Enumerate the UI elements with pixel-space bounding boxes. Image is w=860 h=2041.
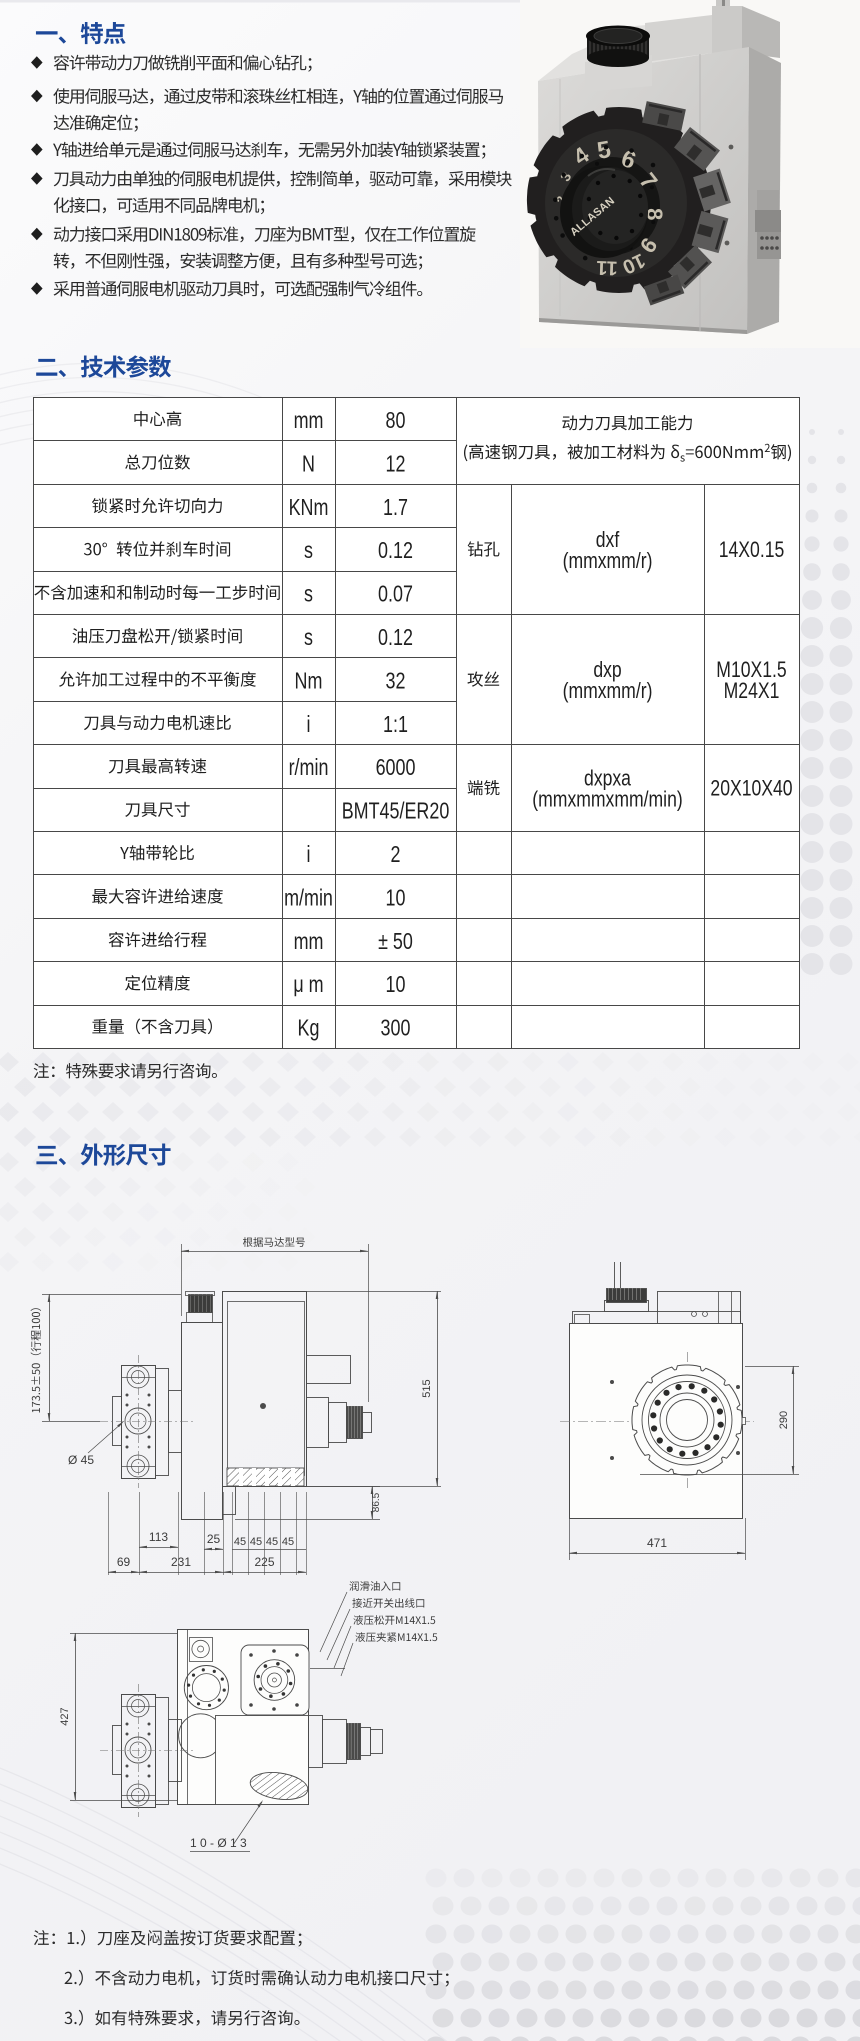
svg-text:Ø 45: Ø 45 [68,1453,94,1467]
svg-text:(mmxmmxmm/min): (mmxmmxmm/min) [532,788,682,812]
svg-text:225: 225 [254,1555,274,1569]
svg-text:45: 45 [282,1536,294,1548]
svg-text:BMT45/ER20: BMT45/ER20 [342,799,450,825]
svg-text:45: 45 [266,1536,278,1548]
svg-text:i: i [307,712,311,738]
svg-text:m/min: m/min [284,885,333,911]
svg-text:290: 290 [778,1411,790,1429]
svg-text:10: 10 [386,972,406,998]
svg-text:mm: mm [294,408,324,434]
svg-text:(mmxmm/r): (mmxmm/r) [563,679,653,703]
svg-text:(mmxmm/r): (mmxmm/r) [563,549,653,573]
svg-text:427: 427 [59,1707,71,1725]
svg-text:86.5: 86.5 [371,1492,382,1512]
svg-text:s: s [304,625,313,651]
svg-text:μ m: μ m [293,972,323,998]
svg-text:s: s [304,538,313,564]
svg-text:Nm: Nm [295,668,323,694]
svg-text:69: 69 [117,1555,131,1569]
svg-text:0.12: 0.12 [378,538,413,564]
svg-text:45: 45 [250,1536,262,1548]
svg-text:M24X1: M24X1 [724,679,780,703]
svg-text:20X10X40: 20X10X40 [710,777,792,801]
svg-text:± 50: ± 50 [378,929,413,955]
svg-text:N: N [302,451,315,477]
svg-text:113: 113 [149,1530,168,1544]
svg-text:45: 45 [234,1536,246,1548]
svg-text:i: i [307,842,311,868]
svg-text:1.7: 1.7 [383,495,408,521]
svg-text:471: 471 [647,1536,667,1550]
svg-text:6000: 6000 [376,755,416,781]
svg-text:14X0.15: 14X0.15 [719,538,785,562]
svg-text:10: 10 [386,885,406,911]
svg-text:25: 25 [207,1532,221,1546]
svg-text:0.12: 0.12 [378,625,413,651]
svg-text:300: 300 [381,1016,411,1042]
svg-text:11: 11 [596,256,618,279]
svg-text:KNm: KNm [289,495,329,521]
svg-text:Kg: Kg [298,1016,320,1042]
svg-text:515: 515 [421,1379,433,1397]
svg-text:mm: mm [294,929,324,955]
svg-text:1:1: 1:1 [383,712,408,738]
svg-text:12: 12 [386,451,406,477]
svg-text:2: 2 [391,842,401,868]
svg-text:231: 231 [171,1555,191,1569]
svg-text:r/min: r/min [289,755,329,781]
svg-text:1 0 - Ø 1 3: 1 0 - Ø 1 3 [190,1836,247,1850]
svg-text:32: 32 [386,668,406,694]
svg-text:s: s [304,582,313,608]
svg-text:80: 80 [386,408,406,434]
svg-text:0.07: 0.07 [378,582,413,608]
